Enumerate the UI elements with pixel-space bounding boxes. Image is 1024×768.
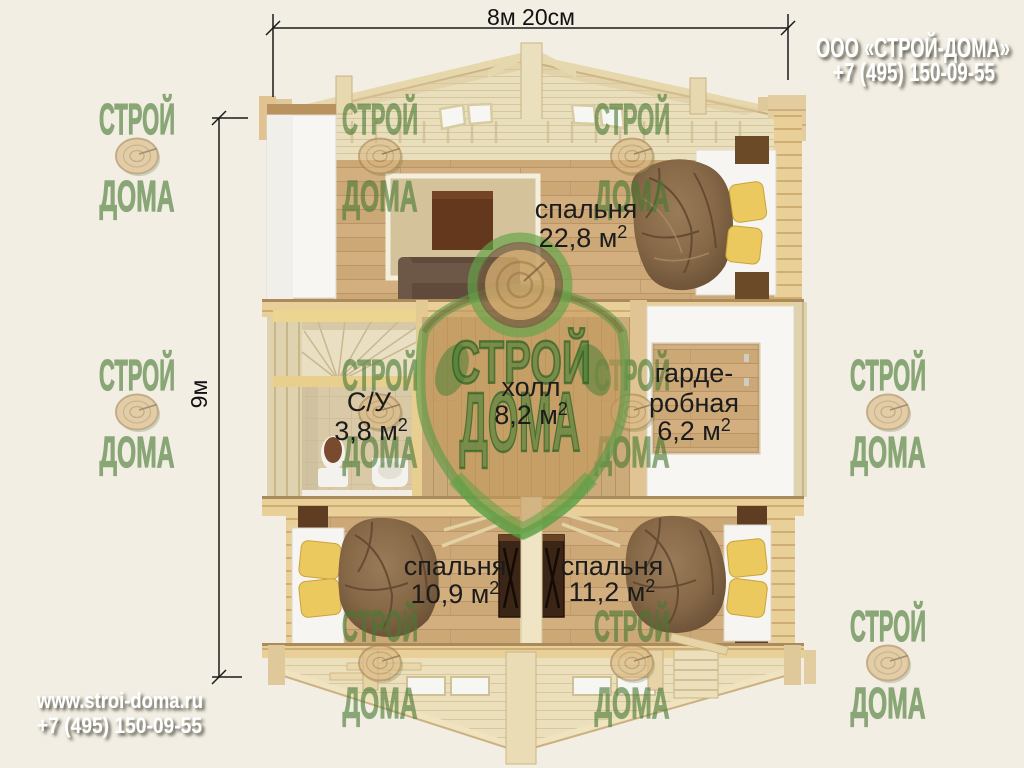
svg-text:22,8 м2: 22,8 м2 — [539, 222, 628, 253]
svg-text:спальня: спальня — [404, 551, 507, 581]
svg-text:+7 (495) 150-09-55: +7 (495) 150-09-55 — [37, 713, 202, 738]
svg-text:www.stroi-doma.ru: www.stroi-doma.ru — [36, 688, 203, 713]
svg-text:9м: 9м — [186, 380, 212, 409]
svg-text:С/У: С/У — [347, 387, 392, 417]
svg-text:8,2 м2: 8,2 м2 — [494, 399, 568, 430]
svg-text:11,2 м2: 11,2 м2 — [569, 576, 656, 607]
svg-text:спальня: спальня — [535, 194, 638, 224]
svg-text:8м 20см: 8м 20см — [487, 4, 575, 30]
svg-text:робная: робная — [649, 388, 739, 418]
svg-text:10,9 м2: 10,9 м2 — [411, 578, 500, 609]
svg-text:гарде-: гарде- — [655, 358, 733, 388]
svg-text:+7 (495) 150-09-55: +7 (495) 150-09-55 — [833, 57, 995, 87]
svg-text:6,2 м2: 6,2 м2 — [657, 415, 731, 446]
svg-text:холл: холл — [501, 372, 560, 402]
svg-text:3,8 м2: 3,8 м2 — [334, 415, 408, 446]
